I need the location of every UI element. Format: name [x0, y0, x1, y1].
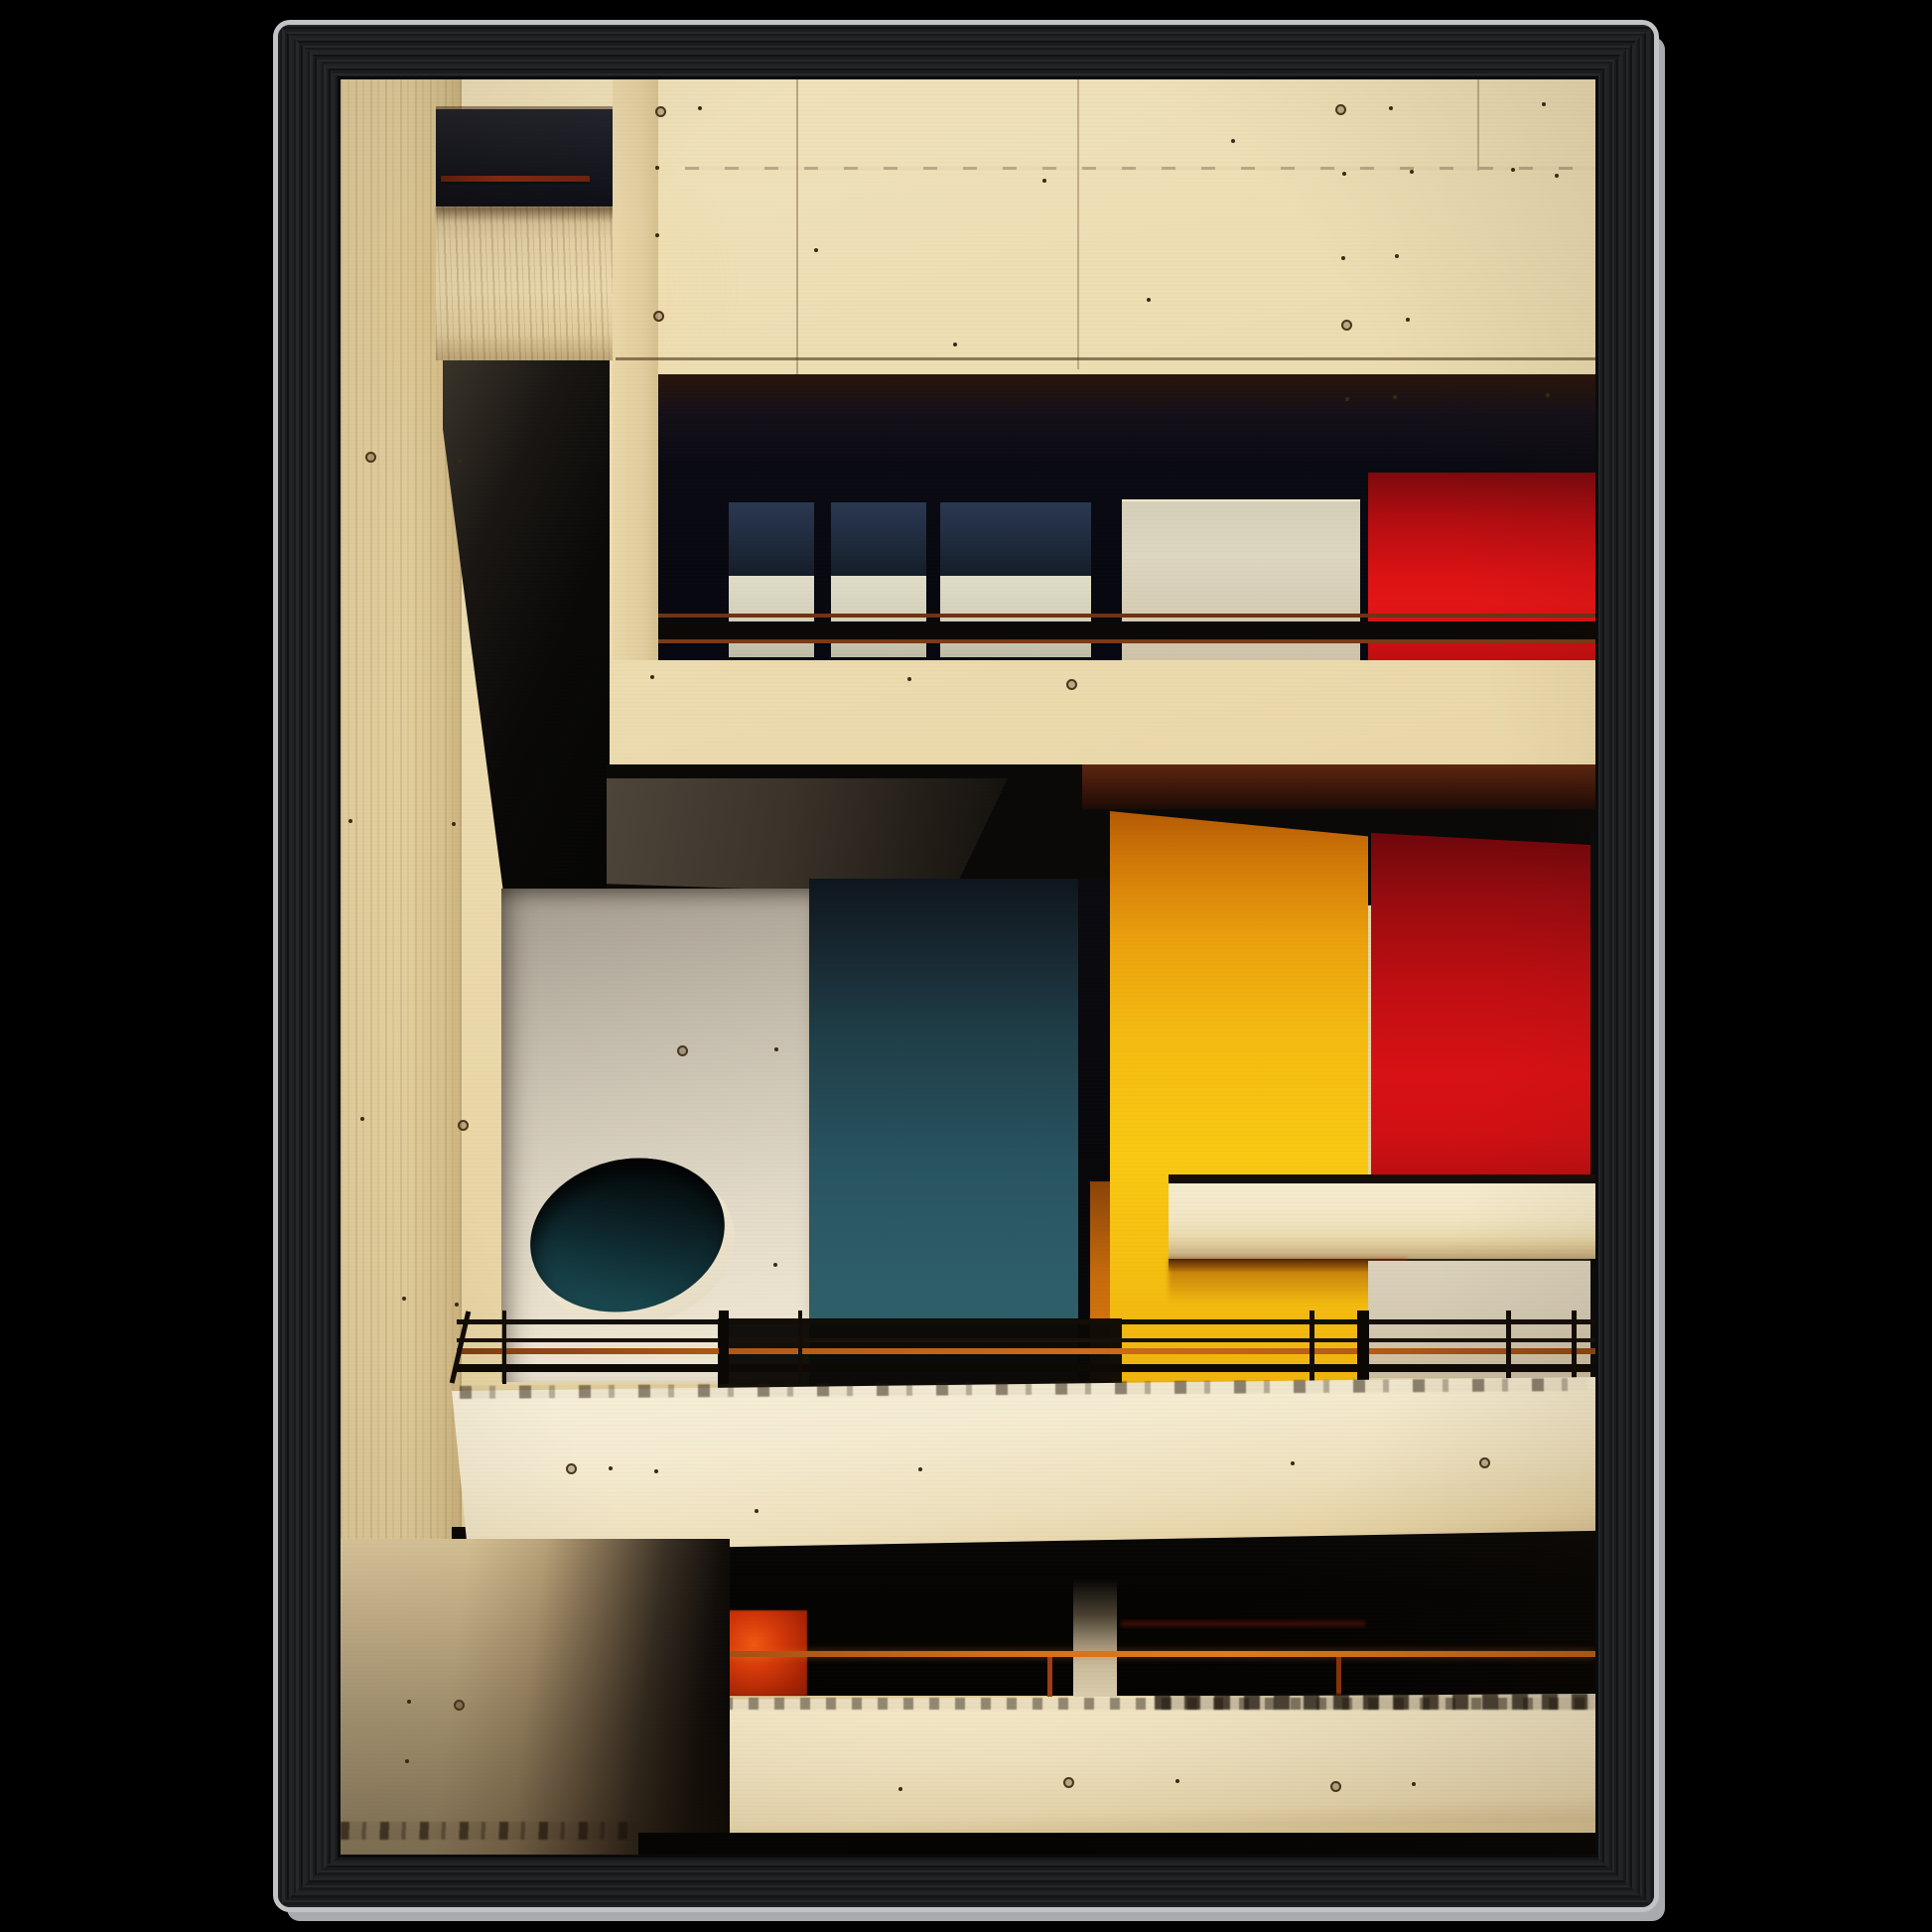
artwork-print — [341, 79, 1595, 1855]
concrete-tie-hole — [1066, 679, 1077, 690]
scene-background — [0, 0, 1932, 1932]
concrete-speck — [1231, 139, 1235, 143]
concrete-speck — [1406, 318, 1410, 322]
concrete-speck — [898, 1787, 902, 1791]
concrete-speck — [452, 822, 456, 826]
concrete-speck — [1410, 170, 1414, 174]
concrete-speck — [1546, 393, 1550, 397]
concrete-speck — [402, 1297, 406, 1301]
concrete-speck — [907, 677, 911, 681]
concrete-speck — [655, 166, 659, 170]
concrete-speck — [774, 1047, 778, 1051]
concrete-speck — [455, 1303, 459, 1307]
concrete-tie-hole — [1341, 320, 1352, 331]
concrete-speck — [1542, 102, 1546, 106]
concrete-speck — [655, 233, 659, 237]
concrete-speck — [405, 1759, 409, 1763]
concrete-speck — [609, 1466, 613, 1470]
concrete-tie-hole — [454, 1700, 465, 1711]
concrete-speck — [773, 1263, 777, 1267]
concrete-speck — [953, 343, 957, 346]
concrete-tie-hole — [1330, 1781, 1341, 1792]
concrete-speck — [1291, 1461, 1295, 1465]
concrete-speck — [1511, 168, 1515, 172]
concrete-speck — [1555, 174, 1559, 178]
concrete-tie-hole — [365, 452, 376, 463]
concrete-speck — [1175, 1779, 1179, 1783]
concrete-tie-hole — [1063, 1777, 1074, 1788]
concrete-tie-hole — [653, 311, 664, 322]
concrete-speck — [1341, 256, 1345, 260]
concrete-speck — [1345, 397, 1349, 401]
concrete-speck — [458, 459, 462, 463]
frame-right-rail — [1593, 25, 1654, 1907]
concrete-speck — [1147, 298, 1151, 302]
frame-bottom-rail — [278, 1855, 1654, 1907]
concrete-tie-hole — [1335, 104, 1346, 115]
concrete-speck — [698, 106, 702, 110]
concrete-tie-hole — [677, 1045, 688, 1056]
print-vignette — [341, 79, 1595, 1855]
concrete-speck — [1412, 1782, 1416, 1786]
concrete-speck — [1395, 254, 1399, 258]
concrete-speck — [814, 248, 818, 252]
concrete-speck — [360, 1117, 364, 1121]
concrete-tie-hole — [1479, 1457, 1490, 1468]
concrete-speck — [1389, 106, 1393, 110]
concrete-tie-hole — [566, 1463, 577, 1474]
concrete-speck — [1393, 395, 1397, 399]
concrete-speck — [755, 1509, 759, 1513]
concrete-speck — [1042, 179, 1046, 183]
concrete-tie-hole — [655, 106, 666, 117]
concrete-speck — [348, 819, 352, 823]
frame-top-rail — [278, 25, 1654, 79]
concrete-speck — [1342, 172, 1346, 176]
concrete-speck — [654, 1469, 658, 1473]
frame-left-rail — [278, 25, 341, 1907]
concrete-speck — [407, 1700, 411, 1704]
concrete-tie-hole — [458, 1120, 469, 1131]
concrete-speck — [918, 1467, 922, 1471]
concrete-speck — [650, 675, 654, 679]
